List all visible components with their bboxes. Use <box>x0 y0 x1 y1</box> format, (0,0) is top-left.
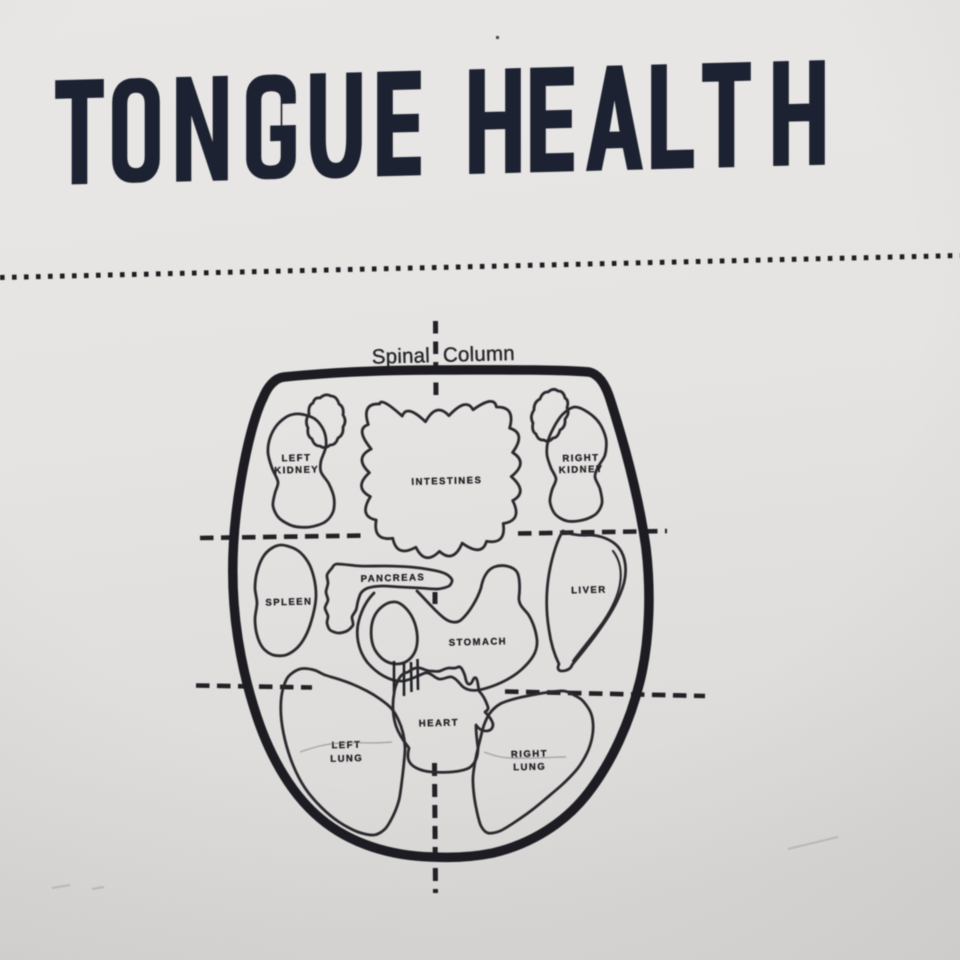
svg-text:Column: Column <box>443 342 515 367</box>
svg-text:Spinal: Spinal <box>372 344 431 369</box>
svg-text:LUNG: LUNG <box>330 753 363 765</box>
svg-text:STOMACH: STOMACH <box>449 636 508 649</box>
svg-text:INTESTINES: INTESTINES <box>411 475 482 488</box>
svg-text:LEFT: LEFT <box>281 453 311 465</box>
svg-text:PANCREAS: PANCREAS <box>360 572 425 585</box>
svg-text:RIGHT: RIGHT <box>511 749 548 761</box>
svg-text:LIVER: LIVER <box>571 585 607 597</box>
svg-text:KIDNEY: KIDNEY <box>274 464 319 476</box>
svg-text:LUNG: LUNG <box>513 762 546 774</box>
svg-text:LEFT: LEFT <box>331 740 361 752</box>
svg-text:SPLEEN: SPLEEN <box>265 596 312 608</box>
svg-text:RIGHT: RIGHT <box>562 453 599 465</box>
svg-text:KIDNEY: KIDNEY <box>559 464 604 476</box>
svg-text:HEART: HEART <box>419 717 460 729</box>
